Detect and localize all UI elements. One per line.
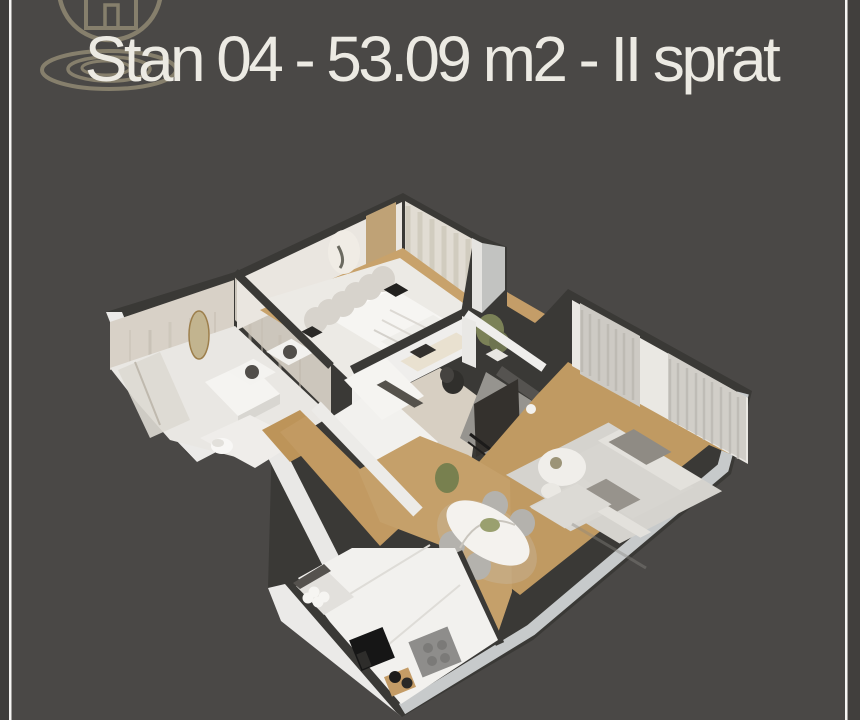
svg-text:Stan 04 - 53.09 m2 - II sprat: Stan 04 - 53.09 m2 - II sprat — [85, 23, 781, 95]
